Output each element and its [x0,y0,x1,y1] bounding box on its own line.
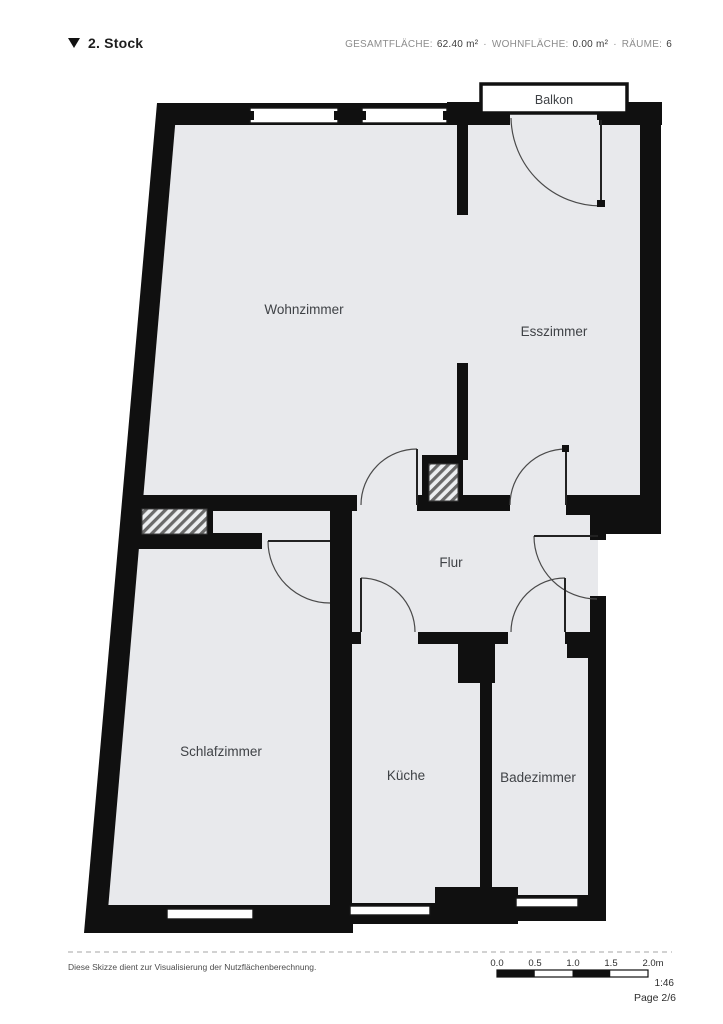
door-hinge [562,445,569,452]
window-wohnzimmer-right [362,108,447,123]
flur-floor [340,496,598,643]
window-end-cap [443,111,449,120]
window-end-cap [334,111,340,120]
window-kueche [350,906,430,915]
shaft-left-hatch [142,509,207,534]
wall-right-esszimmer [640,102,661,517]
floor-indicator-icon [68,38,80,48]
scale-tick-1: 0.5 [528,958,541,969]
balcony: Balkon [481,84,627,113]
door-hinge [597,112,605,120]
wall-kueche-bad-pier [458,632,495,683]
door-hinge [597,200,605,207]
wall-right-step [590,515,661,534]
scale-tick-4: 2.0m [642,958,663,969]
scale-tick-3: 1.5 [604,958,617,969]
stat-label-raeume: RÄUME: [622,38,662,50]
wall-kueche-bad-divider [480,681,492,896]
wall-esszimmer-bottom-right [566,495,641,515]
schlafzimmer-label: Schlafzimmer [180,744,262,759]
wall-flur-bottom-2 [418,632,458,644]
shaft-middle-hatch [429,464,458,501]
window-end-cap [248,111,254,120]
scale-ratio: 1:46 [655,978,675,989]
stat-separator: · [613,39,617,50]
badezimmer-floor [480,630,592,906]
window-badezimmer [516,898,578,907]
balkon-label: Balkon [535,93,573,107]
badezimmer-label: Badezimmer [500,770,576,785]
window-end-cap [360,111,366,120]
page-number: Page 2/6 [634,992,676,1004]
area-stats: GESAMTFLÄCHE:62.40 m²·WOHNFLÄCHE:0.00 m²… [345,38,672,50]
scale-bar: 0.0 0.5 1.0 1.5 2.0m 1:46 Page 2/6 [490,958,676,1004]
wall-flur-bottom-4 [565,632,590,644]
floorplan-page: 2. Stock GESAMTFLÄCHE:62.40 m²·WOHNFLÄCH… [0,0,723,1024]
esszimmer-label: Esszimmer [521,324,588,339]
header: 2. Stock GESAMTFLÄCHE:62.40 m²·WOHNFLÄCH… [68,35,672,51]
scale-tick-0: 0.0 [490,958,503,969]
schlafzimmer-floor [107,505,352,912]
stat-value-wohnflaeche: 0.00 m² [573,39,609,50]
stat-value-raeume: 6 [666,39,672,50]
stat-label-gesamtflaeche: GESAMTFLÄCHE: [345,38,433,50]
scale-bar-segment-1 [497,970,535,977]
flur-label: Flur [439,555,463,570]
floorplan-drawing: 2. Stock GESAMTFLÄCHE:62.40 m²·WOHNFLÄCH… [0,0,723,1024]
window-schlafzimmer [167,909,253,919]
stat-separator: · [483,39,487,50]
wall-schlafzimmer-kueche-divider [330,495,352,923]
scale-bar-segment-3 [573,970,611,977]
scale-tick-2: 1.0 [566,958,579,969]
window-wohnzimmer-left [250,108,338,123]
wall-wohn-ess-divider-upper [457,121,468,215]
stat-value-gesamtflaeche: 62.40 m² [437,39,479,50]
wall-schlafzimmer-top [132,533,262,549]
footer: Diese Skizze dient zur Visualisierung de… [68,952,676,1004]
wall-flur-bottom-1 [330,632,361,644]
wohnzimmer-label: Wohnzimmer [264,302,344,317]
disclaimer-text: Diese Skizze dient zur Visualisierung de… [68,962,316,972]
kueche-label: Küche [387,768,425,783]
stat-label-wohnflaeche: WOHNFLÄCHE: [492,38,569,50]
wall-right-badezimmer [588,655,606,921]
page-title: 2. Stock [88,35,143,51]
wohnzimmer-esszimmer-floor [143,125,640,500]
wall-wohn-ess-divider-lower [457,363,468,460]
wall-flur-bottom-3 [495,632,508,644]
